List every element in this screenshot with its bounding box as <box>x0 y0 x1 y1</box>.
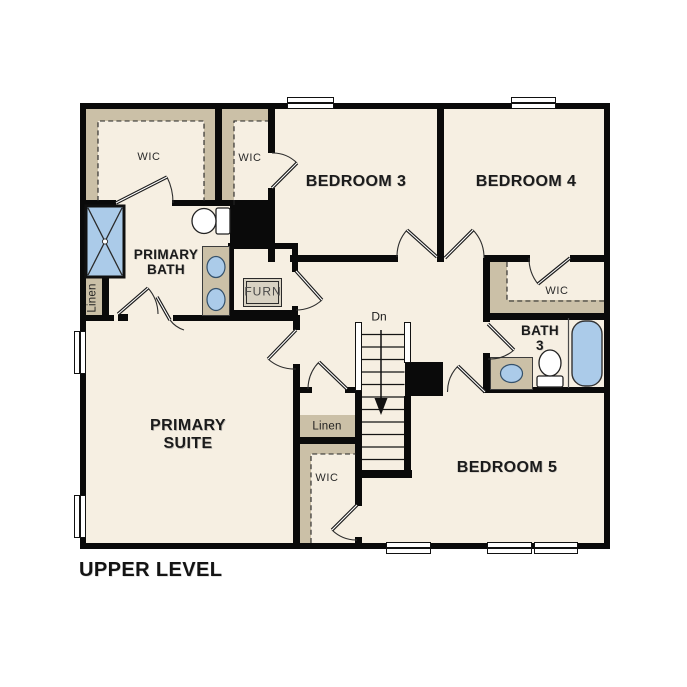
bath3-sink <box>501 365 523 383</box>
door-primary-bath-swing2 <box>157 297 184 330</box>
door-linen-hall <box>308 362 347 389</box>
label-bedroom4: BEDROOM 4 <box>476 173 577 191</box>
label-linen-hall: Linen <box>312 421 341 434</box>
door-primary-suite <box>268 330 296 369</box>
label-bedroom3: BEDROOM 3 <box>306 173 407 191</box>
label-stairs-down: Dn <box>371 310 386 323</box>
label-furnace: FURN <box>244 285 281 298</box>
plan-symbols-layer <box>0 0 687 687</box>
primary-bath-sink-top <box>207 257 225 278</box>
label-wic-bedroom4: WIC <box>545 285 568 297</box>
label-linen-bath: Linen <box>87 283 100 312</box>
bath3-tub <box>569 318 603 388</box>
label-primary-suite: PRIMARY SUITE <box>138 417 238 453</box>
label-bedroom5: BEDROOM 5 <box>457 459 558 477</box>
door-wic-bedroom4 <box>529 258 570 284</box>
label-wic-primary: WIC <box>137 151 160 163</box>
door-bedroom3 <box>397 230 437 257</box>
door-wic-bedroom5 <box>332 505 357 540</box>
label-wic-bedroom3: WIC <box>238 152 261 164</box>
stairs <box>362 330 405 460</box>
label-bath3: BATH 3 <box>515 323 565 353</box>
floor-plan: WIC WIC WIC WIC BEDROOM 3 BEDROOM 4 BEDR… <box>0 0 687 687</box>
page-title: UPPER LEVEL <box>79 559 222 582</box>
bath3-toilet <box>537 350 563 387</box>
door-bedroom5 <box>447 366 485 392</box>
door-furnace <box>296 271 322 310</box>
door-bedroom4 <box>445 230 484 258</box>
primary-bath-sink-bottom <box>207 289 225 311</box>
primary-bath-toilet <box>192 208 230 234</box>
door-bath3 <box>488 324 514 359</box>
label-primary-bath: PRIMARY BATH <box>125 247 207 277</box>
shower <box>86 206 124 277</box>
label-wic-bedroom5: WIC <box>315 472 338 484</box>
door-wic-primary <box>116 177 173 203</box>
door-primary-bath <box>118 288 158 314</box>
door-wic-bedroom3 <box>272 153 297 188</box>
